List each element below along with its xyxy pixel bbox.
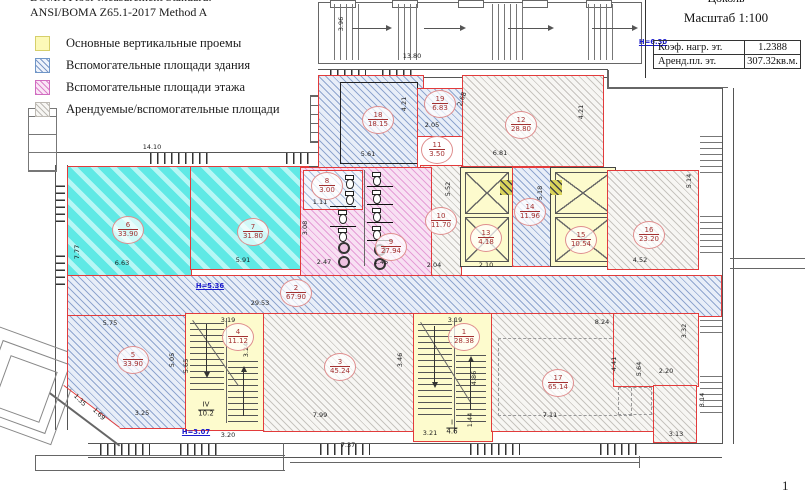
room-label-17: 1765.14 (542, 369, 574, 397)
room-number: 11 (433, 142, 442, 149)
dimension-label: 7.77 (73, 245, 81, 259)
dimension-label: 5.18 (536, 186, 544, 200)
dashed-box-bottom-right (618, 387, 652, 415)
title-block-row-label: Коэф. нагр. эт. (654, 41, 745, 54)
room-area-value: 23.20 (639, 234, 659, 243)
terrace-pilaster (458, 0, 484, 8)
room-area-value: 11.96 (520, 211, 540, 220)
height-mark: Н=5.36 (196, 282, 224, 290)
wc-partition (367, 222, 393, 223)
dimension-label: 8.24 (595, 318, 609, 326)
scale-label: Масштаб 1:100 (646, 10, 805, 26)
standard-title-line2: ANSI/BOMA Z65.1-2017 Method A (30, 5, 320, 20)
room-label-18: 1818.15 (362, 106, 394, 134)
dimension-label: 4.21 (400, 97, 408, 111)
room-label-12: 1228.80 (505, 111, 537, 139)
room-label-9: 927.94 (375, 233, 407, 261)
terrace-edge-line (35, 455, 285, 456)
legend-label: Вспомогательные площади здания (66, 58, 250, 73)
elevator-car-right-top (555, 172, 611, 214)
room-label-7: 731.80 (237, 218, 269, 246)
dimension-label: 2.04 (427, 261, 441, 269)
room-number: 12 (517, 117, 526, 124)
dimension-label: 7.99 (313, 411, 327, 419)
dimension-label: 5.61 (361, 150, 375, 158)
window-ticks (600, 444, 640, 455)
room-area-value: 10.54 (571, 239, 591, 248)
legend: BOMA Floor Measurement Standard: ANSI/BO… (30, 0, 320, 120)
window-ticks (286, 153, 314, 164)
window-ticks (56, 255, 65, 285)
room-area-value: 3.00 (319, 185, 335, 194)
dimension-label: 4.21 (577, 105, 585, 119)
wc-partition (367, 204, 393, 205)
room-area-value: 18.15 (368, 119, 388, 128)
room-number: 15 (577, 232, 586, 239)
floor-label: Цоколь (646, 0, 805, 6)
direction-arrow (508, 28, 552, 29)
toilet-icon (372, 208, 381, 221)
legend-swatch-yellow-icon (35, 36, 50, 51)
dimension-label: 4.41 (610, 357, 618, 371)
legend-swatch-gray-icon (35, 102, 50, 117)
room-number: 19 (436, 96, 445, 103)
wc-partition-wall (364, 170, 365, 266)
shaft-hatch-block (550, 180, 562, 195)
dimension-label: 3.46 (396, 353, 404, 367)
room-label-1: 128.38 (448, 323, 480, 351)
window-ticks (180, 444, 220, 455)
room-area-value: 11.12 (228, 336, 248, 345)
terrace-edge-line (290, 462, 640, 463)
title-block-row-value: 307.32кв.м. (745, 55, 800, 68)
stair-arrow-up (243, 368, 244, 416)
dimension-label: 3.21 (423, 429, 437, 437)
legend-items: Основные вертикальные проемыВспомогатель… (30, 32, 320, 120)
dimension-label: 7.37 (341, 441, 355, 449)
legend-item-pink: Вспомогательные площади этажа (30, 76, 320, 98)
room-area-value: 28.38 (454, 336, 474, 345)
room-number: 5 (131, 352, 135, 359)
room-number: 4 (236, 329, 240, 336)
dimension-label: 2.47 (317, 258, 331, 266)
dimension-label: 5.14 (685, 174, 693, 188)
window-lines-right (700, 215, 722, 253)
wall-corner-step (607, 70, 609, 88)
title-block-row: Аренд.пл. эт.307.32кв.м. (654, 54, 800, 68)
title-block-table: Коэф. нагр. эт.1.2388Аренд.пл. эт.307.32… (653, 40, 801, 69)
dimension-label: 5.05 (168, 353, 176, 367)
room-label-19: 196.83 (424, 90, 456, 118)
dimension-label: 3.96 (337, 17, 345, 31)
room-label-2: 267.90 (280, 279, 312, 307)
shaft-hatch-block (500, 180, 512, 195)
floor-drain-icon (338, 256, 350, 268)
room-area-value: 4.6 (446, 427, 457, 436)
dimension-label: 2.20 (659, 367, 673, 375)
room-area-value: 4.18 (478, 237, 494, 246)
dimension-label: 13.80 (403, 52, 422, 60)
toilet-icon (338, 210, 347, 223)
title-block-row-value: 1.2388 (745, 41, 800, 54)
dimension-label: 5.64 (635, 362, 643, 376)
room-label-10: 1011.70 (425, 207, 457, 235)
terrace-edge-line (283, 443, 284, 471)
room-label-4: 411.12 (222, 323, 254, 351)
direction-arrow (592, 28, 636, 29)
legend-label: Арендуемые/вспомогательные площади (66, 102, 280, 117)
room-area-value: 3.50 (429, 149, 445, 158)
terrace-window-lines (334, 4, 360, 60)
legend-swatch-pink-icon (35, 80, 50, 95)
room-number: 6 (126, 222, 130, 229)
floorplan-canvas: BOMA Floor Measurement Standard: ANSI/BO… (0, 0, 805, 500)
window-ticks (100, 444, 150, 455)
toilet-icon (338, 228, 347, 241)
dimension-label: 3.14 (698, 393, 706, 407)
canopy-line-right (730, 268, 805, 269)
dimension-label: 6.63 (115, 259, 129, 267)
room-area-value: 67.90 (286, 292, 306, 301)
wall-top-right (607, 87, 728, 89)
room-label-5: 533.90 (117, 346, 149, 374)
title-block-row: Коэф. нагр. эт.1.2388 (654, 41, 800, 54)
dimension-label: 5.65 (182, 359, 190, 373)
room-area-value: 45.24 (330, 366, 350, 375)
room-number: 16 (645, 227, 654, 234)
height-mark: Н=3.07 (182, 428, 210, 436)
toilet-icon (372, 190, 381, 203)
dimension-label: 5.91 (236, 256, 250, 264)
room-area-value: 27.94 (381, 246, 401, 255)
dimension-label: 5.52 (444, 182, 452, 196)
room-area-value: 11.70 (431, 220, 451, 229)
sink-icon (345, 191, 354, 204)
title-block-row-label: Аренд.пл. эт. (654, 55, 745, 68)
stair-arrow-down (434, 326, 435, 386)
dimension-label: 3.20 (221, 431, 235, 439)
window-lines-right (700, 135, 722, 173)
room-area-value: 33.90 (118, 229, 138, 238)
legend-item-gray: Арендуемые/вспомогательные площади (30, 98, 320, 120)
room-area-value: 65.14 (548, 382, 568, 391)
sink-icon (345, 175, 354, 188)
room-number: 3 (338, 359, 342, 366)
legend-label: Вспомогательные площади этажа (66, 80, 245, 95)
wc-partition (330, 206, 356, 207)
room-number: 17 (554, 375, 563, 382)
stair-label-I: I4.6 (446, 420, 457, 437)
stair-label-IV: IV10.2 (198, 402, 214, 419)
terrace-edge-line (35, 455, 36, 471)
room-label-15: 1510.54 (565, 226, 597, 254)
room-number: 9 (389, 239, 393, 246)
direction-arrow (352, 28, 390, 29)
room-label-13: 134.18 (470, 224, 502, 252)
floor-drain-icon (338, 242, 350, 254)
room-number: I (451, 420, 453, 428)
room-number: 13 (482, 230, 491, 237)
room-number: 8 (325, 178, 329, 185)
dimension-label: 14.10 (143, 143, 162, 151)
dimension-label: 4.86 (470, 371, 478, 385)
window-ticks (150, 153, 210, 164)
room-area-value: 31.80 (243, 231, 263, 240)
dimension-label: 2.05 (425, 121, 439, 129)
room-number: IV (203, 402, 210, 410)
room-label-16: 1623.20 (633, 221, 665, 249)
room-number: 1 (462, 329, 466, 336)
room-number: 2 (294, 285, 298, 292)
toilet-icon (372, 172, 381, 185)
terrace-edge-line (35, 470, 285, 471)
dimension-label: 6.81 (493, 149, 507, 157)
dimension-label: 7.11 (543, 411, 557, 419)
legend-swatch-blue-icon (35, 58, 50, 73)
dimension-label: 29.53 (251, 299, 270, 307)
window-ticks (56, 182, 65, 222)
terrace-window-lines (492, 4, 526, 60)
dimension-label: 5.75 (103, 319, 117, 327)
room-label-6: 633.90 (112, 216, 144, 244)
room-area-value: 10.2 (198, 409, 214, 418)
legend-item-yellow: Основные вертикальные проемы (30, 32, 320, 54)
dimension-label: 3.13 (669, 430, 683, 438)
room-area-value: 28.80 (511, 124, 531, 133)
dimension-label: 2.10 (479, 261, 493, 269)
legend-label: Основные вертикальные проемы (66, 36, 241, 51)
legend-item-blue: Вспомогательные площади здания (30, 54, 320, 76)
dimension-label: 3.08 (301, 221, 309, 235)
wc-partition (367, 186, 393, 187)
dimension-label: 3.32 (680, 324, 688, 338)
room-area-value: 33.90 (123, 359, 143, 368)
page-number: 1 (782, 478, 789, 494)
stair-arrow-down (206, 324, 207, 376)
room-label-3: 345.24 (324, 353, 356, 381)
dimension-label: 1.44 (466, 413, 474, 427)
room-number: 14 (526, 204, 535, 211)
room-label-11: 113.50 (421, 136, 453, 164)
title-block: Цоколь Масштаб 1:100 Коэф. нагр. эт.1.23… (645, 0, 805, 78)
canopy-line-right (730, 258, 805, 259)
corridor-room-2-area (67, 275, 722, 317)
room-number: 7 (251, 224, 255, 231)
window-ticks (470, 444, 520, 455)
dimension-label: 4.52 (633, 256, 647, 264)
room-number: 10 (437, 213, 446, 220)
terrace-window-lines (588, 4, 618, 60)
wall-right (722, 88, 734, 444)
room-label-8: 83.00 (311, 172, 343, 200)
dimension-label: 3.25 (135, 409, 149, 417)
direction-arrow (424, 28, 464, 29)
terrace-edge-line (639, 456, 640, 468)
room-number: 18 (374, 112, 383, 119)
room-label-14: 1411.96 (514, 198, 546, 226)
room-area-value: 6.83 (432, 103, 448, 112)
